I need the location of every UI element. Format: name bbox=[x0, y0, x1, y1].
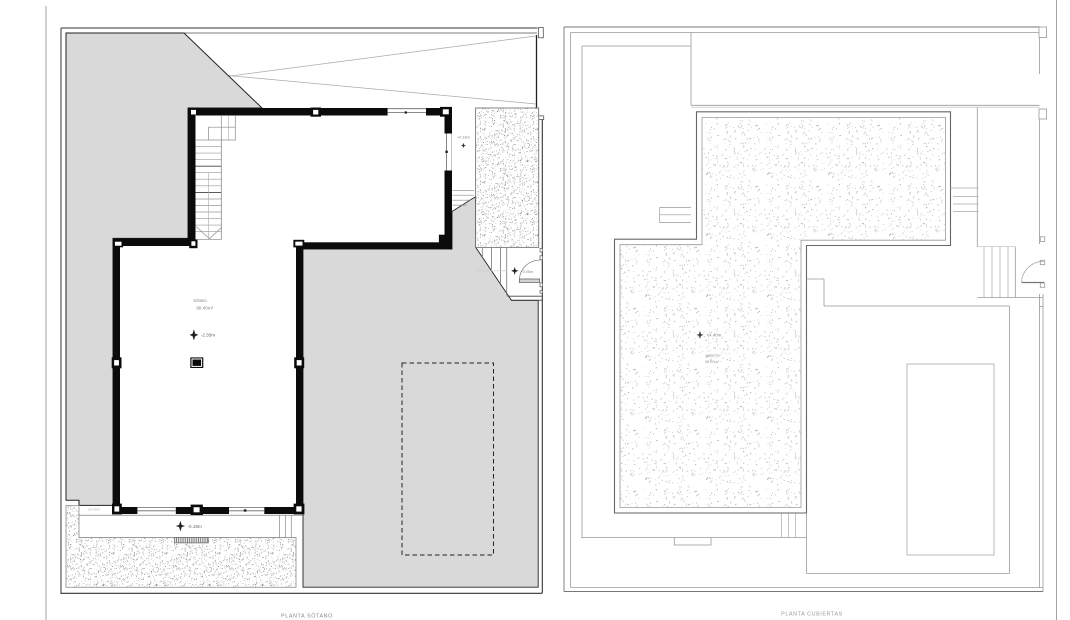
svg-text:cubierta: cubierta bbox=[705, 354, 719, 358]
svg-text:Sótano: Sótano bbox=[193, 298, 207, 303]
svg-text:±0.00m: ±0.00m bbox=[88, 507, 100, 511]
svg-text:+0.18m: +0.18m bbox=[457, 135, 470, 139]
svg-text:PLANTA SÓTANO: PLANTA SÓTANO bbox=[281, 613, 333, 620]
svg-text:+0.05m: +0.05m bbox=[520, 270, 533, 274]
svg-text:-2.35m: -2.35m bbox=[201, 333, 215, 338]
svg-text:PLANTA CUBIERTAS: PLANTA CUBIERTAS bbox=[781, 612, 843, 618]
svg-text:98.50m²: 98.50m² bbox=[705, 360, 720, 364]
svg-text:+4.40m: +4.40m bbox=[707, 333, 722, 338]
svg-text:-0.18m: -0.18m bbox=[188, 524, 202, 529]
svg-text:98.40m²: 98.40m² bbox=[196, 305, 213, 310]
